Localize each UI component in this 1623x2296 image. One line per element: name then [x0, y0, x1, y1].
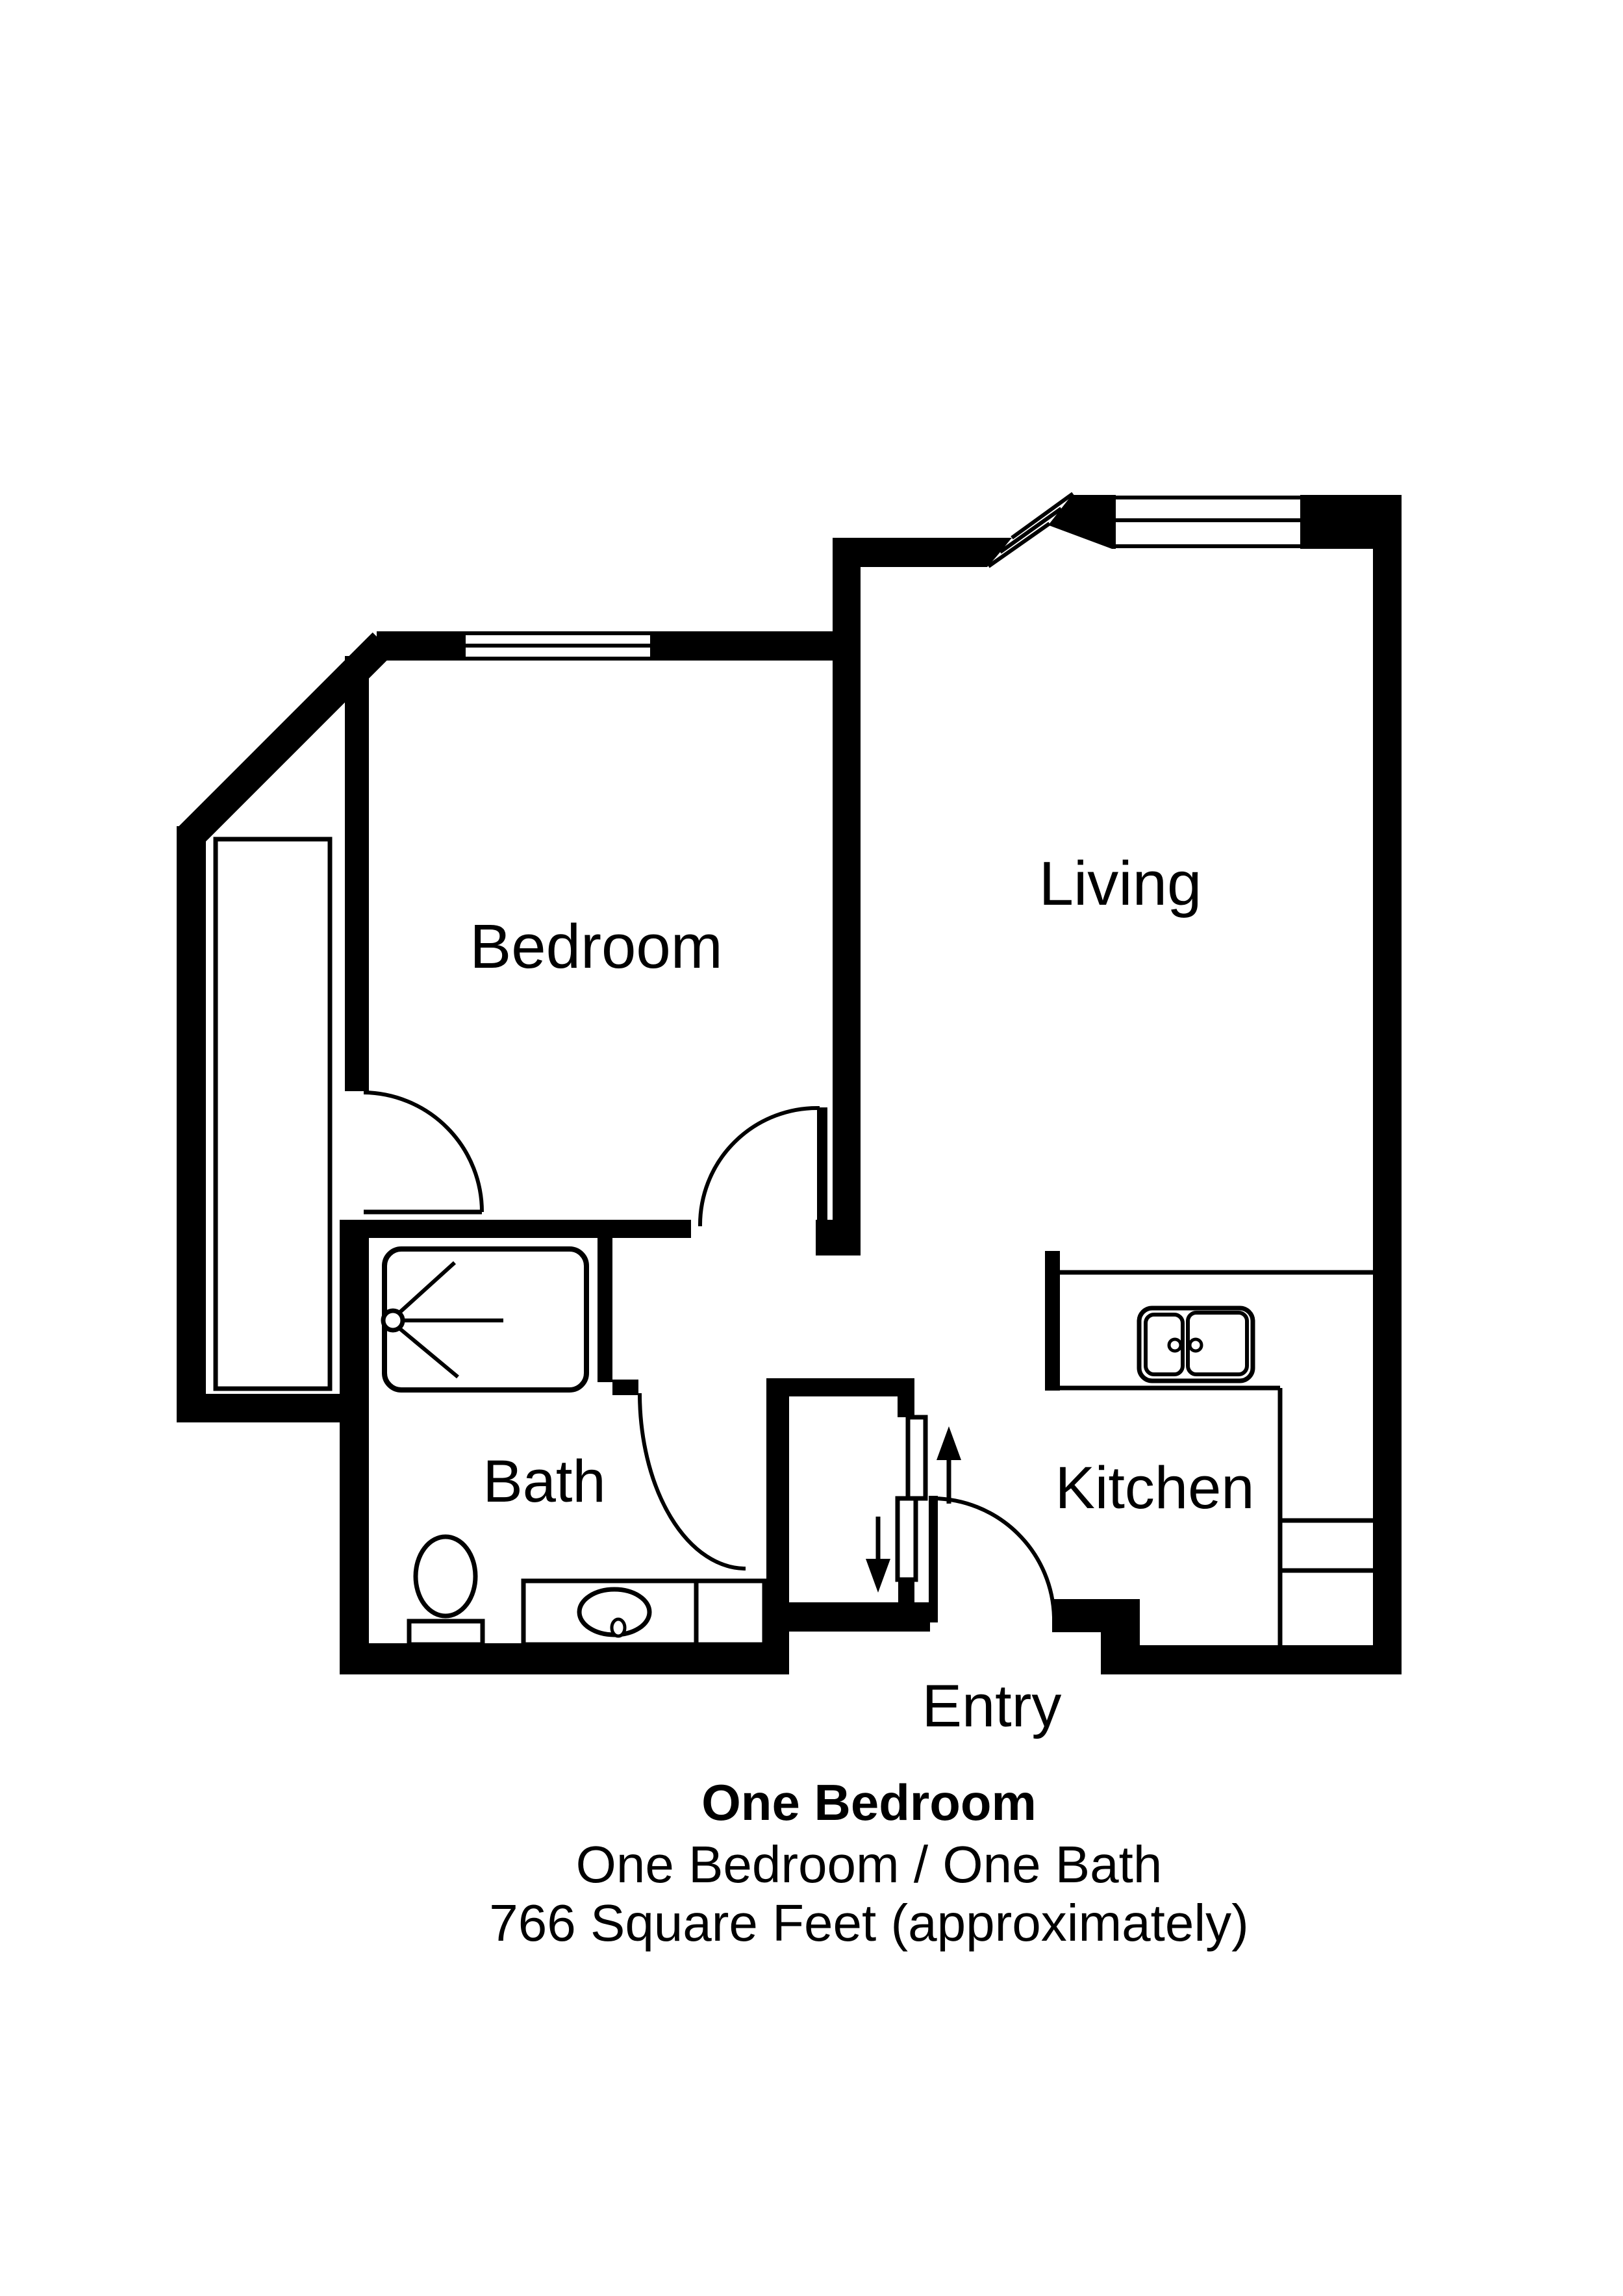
bath-west-wall — [340, 1220, 369, 1674]
living-label: Living — [1039, 849, 1202, 918]
entry-closet-se-stub — [898, 1580, 914, 1602]
bath-label: Bath — [483, 1448, 605, 1515]
kitchen-sink-faucet-dot-right — [1190, 1339, 1202, 1351]
kitchen-sink-faucet-dot-left — [1169, 1339, 1181, 1351]
right-outer-wall — [1373, 495, 1402, 1674]
bedroom-living-divider-wall — [833, 538, 861, 1241]
shower-icon — [383, 1249, 586, 1390]
bedroom-door-leaf — [817, 1107, 827, 1221]
living-window — [1112, 495, 1304, 549]
entry-jamb-connector — [1101, 1599, 1140, 1674]
kitchen-sink-icon — [1139, 1308, 1253, 1381]
floorplan-sheet: Bedroom Living Bath Kitchen Entry One Be… — [0, 0, 1623, 2296]
kitchen-west-stub-wall — [1045, 1251, 1060, 1391]
bedroom-top-wall-right — [653, 631, 833, 661]
entry-door-leaf — [929, 1496, 938, 1622]
entry-closet-ne-stub — [898, 1396, 914, 1417]
floorplan-svg: Bedroom Living Bath Kitchen Entry One Be… — [0, 0, 1623, 2296]
entry-label: Entry — [922, 1673, 1062, 1739]
divider-wall-foot — [816, 1220, 861, 1255]
closet-south-cap-wall — [177, 1394, 369, 1422]
toilet-tank — [409, 1621, 483, 1645]
toilet-icon — [409, 1537, 483, 1645]
bedroom-window — [462, 631, 653, 661]
bath-north-wall — [340, 1220, 691, 1238]
vanity-sink-icon — [523, 1581, 764, 1645]
kitchen-label: Kitchen — [1055, 1455, 1255, 1521]
left-outer-wall — [177, 826, 206, 1422]
bath-partition-wall — [598, 1238, 612, 1382]
caption-area: 766 Square Feet (approximately) — [489, 1894, 1249, 1952]
toilet-bowl — [416, 1537, 475, 1616]
kitchen-bottom-wall — [1101, 1645, 1402, 1674]
sliding-door-panel-lower — [898, 1498, 916, 1580]
living-topleft-wall — [833, 538, 1013, 567]
shower-head — [383, 1311, 403, 1330]
bath-door-jamb-stub — [612, 1380, 638, 1395]
entry-closet-south-wall — [766, 1602, 930, 1632]
vanity-drain — [612, 1619, 625, 1636]
caption-subtitle: One Bedroom / One Bath — [576, 1836, 1163, 1893]
bedroom-label: Bedroom — [470, 912, 723, 981]
bedroom-west-wall — [345, 656, 369, 1091]
bath-south-wall — [341, 1643, 783, 1674]
caption-title: One Bedroom — [701, 1774, 1037, 1831]
sliding-door-panel-upper — [908, 1417, 925, 1498]
